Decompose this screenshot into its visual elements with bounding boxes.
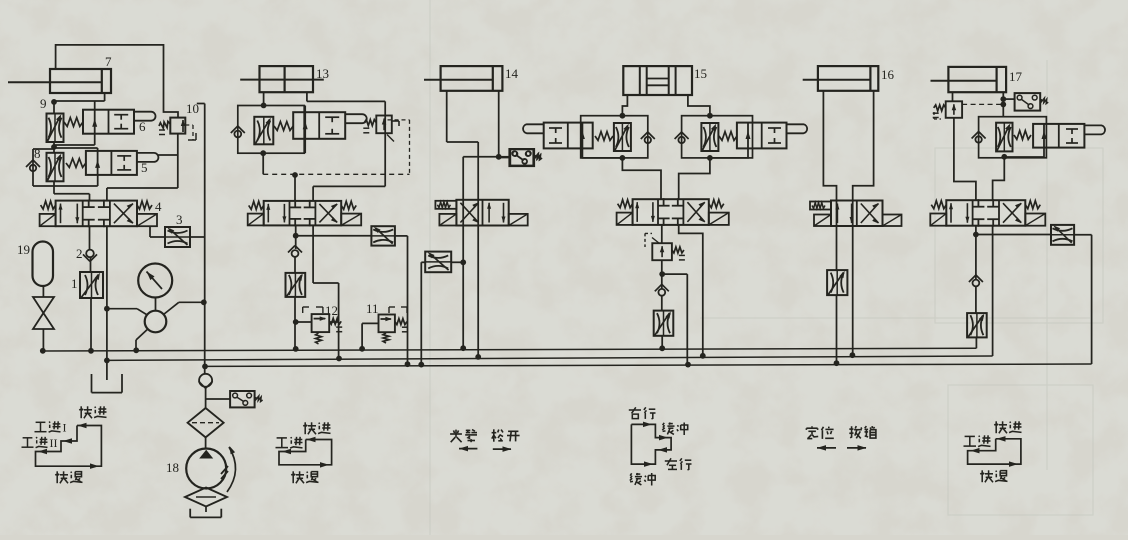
svg-text:9: 9 [40,96,47,111]
svg-text:16: 16 [881,67,895,82]
svg-text:3: 3 [176,212,183,227]
svg-text:1: 1 [71,276,78,291]
svg-text:13: 13 [316,66,329,81]
svg-text:15: 15 [694,66,707,81]
svg-text:19: 19 [17,242,30,257]
svg-text:4: 4 [155,199,162,214]
svg-text:5: 5 [141,160,148,175]
svg-text:11: 11 [366,301,379,316]
svg-text:18: 18 [166,460,179,475]
svg-text:2: 2 [76,246,83,261]
svg-text:I: I [63,421,67,435]
svg-text:7: 7 [105,54,112,69]
svg-text:17: 17 [1009,69,1023,84]
svg-text:II: II [50,436,58,450]
svg-text:6: 6 [139,119,146,134]
svg-text:14: 14 [505,66,519,81]
svg-text:12: 12 [325,303,338,318]
